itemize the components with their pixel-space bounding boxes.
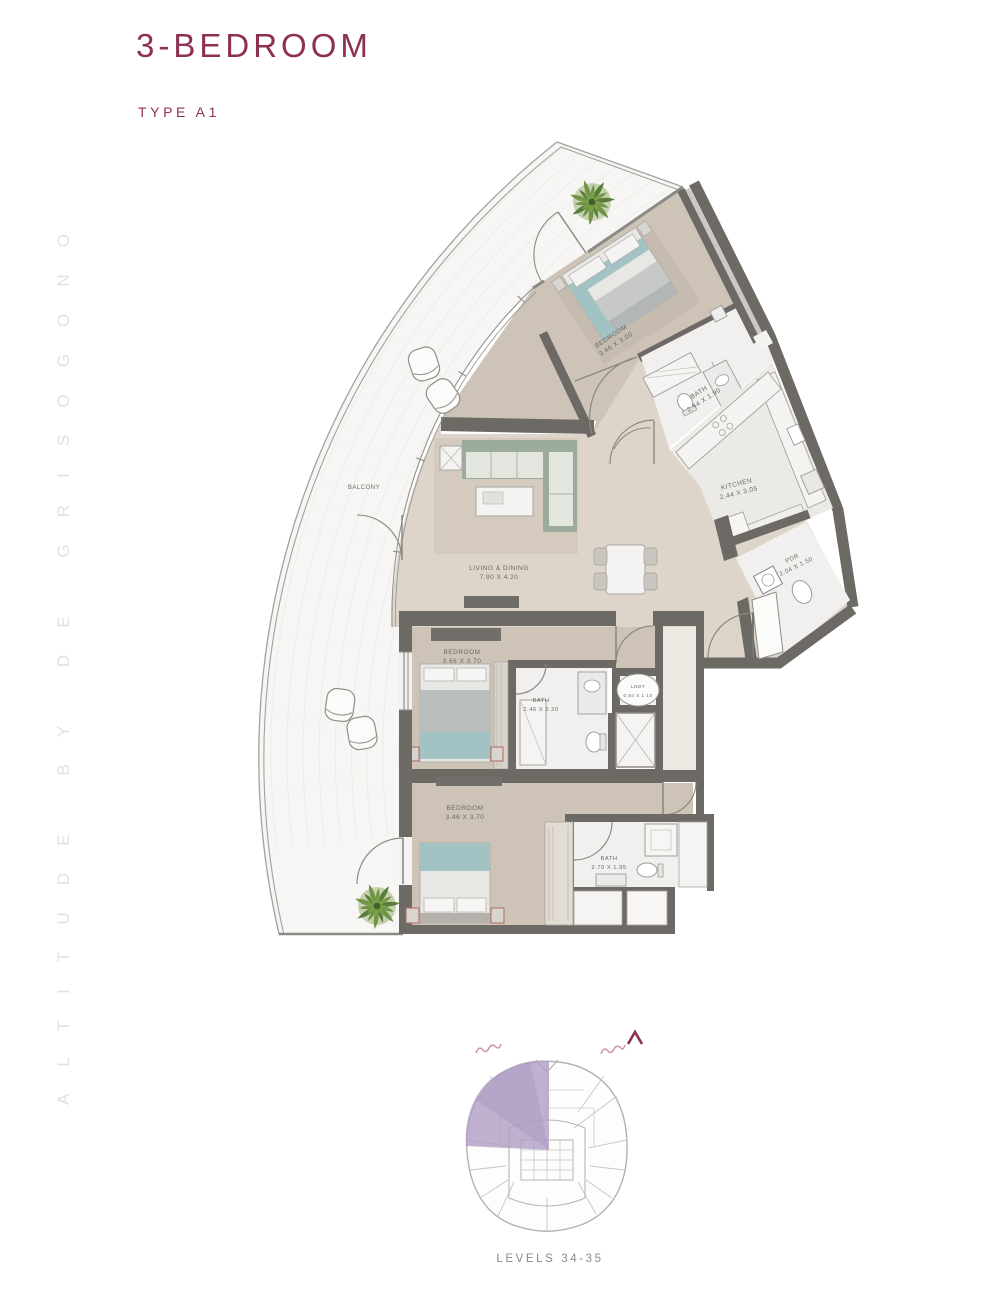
svg-text:BALCONY: BALCONY <box>348 485 380 491</box>
svg-text:3.46 X 3.70: 3.46 X 3.70 <box>446 814 485 821</box>
svg-text:ALTITUDE BY DE GRISOGONO: ALTITUDE BY DE GRISOGONO <box>54 210 73 1105</box>
svg-text:3.66 X 3.70: 3.66 X 3.70 <box>443 658 482 665</box>
svg-text:2.70 X 1.95: 2.70 X 1.95 <box>591 865 626 871</box>
svg-text:LEVELS 34-35: LEVELS 34-35 <box>496 1253 603 1265</box>
svg-text:BATH: BATH <box>532 698 549 704</box>
svg-text:BEDROOM: BEDROOM <box>446 805 483 812</box>
svg-text:0.84 X 1.10: 0.84 X 1.10 <box>624 693 653 698</box>
svg-text:LIVING & DINING: LIVING & DINING <box>469 565 529 572</box>
svg-text:TYPE A1: TYPE A1 <box>138 104 220 120</box>
svg-text:7.90 X 4.20: 7.90 X 4.20 <box>480 574 519 581</box>
svg-text:2.46 X 2.20: 2.46 X 2.20 <box>523 707 558 713</box>
svg-text:BEDROOM: BEDROOM <box>443 649 480 656</box>
svg-text:3-BEDROOM: 3-BEDROOM <box>136 27 372 64</box>
svg-text:LNDT: LNDT <box>631 684 645 689</box>
svg-text:BATH: BATH <box>600 856 617 862</box>
